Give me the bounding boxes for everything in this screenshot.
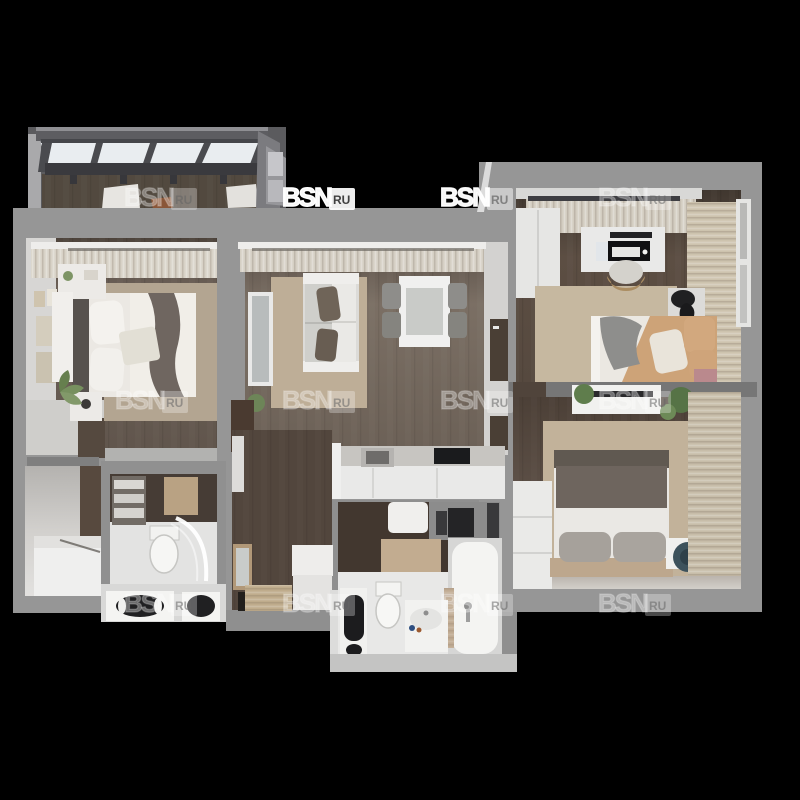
svg-text:BSN: BSN xyxy=(124,182,174,212)
svg-text:BSN: BSN xyxy=(282,182,332,212)
svg-text:RU: RU xyxy=(491,193,508,207)
svg-text:BSN: BSN xyxy=(440,182,490,212)
svg-text:RU: RU xyxy=(333,193,350,207)
svg-text:RU: RU xyxy=(175,193,192,207)
